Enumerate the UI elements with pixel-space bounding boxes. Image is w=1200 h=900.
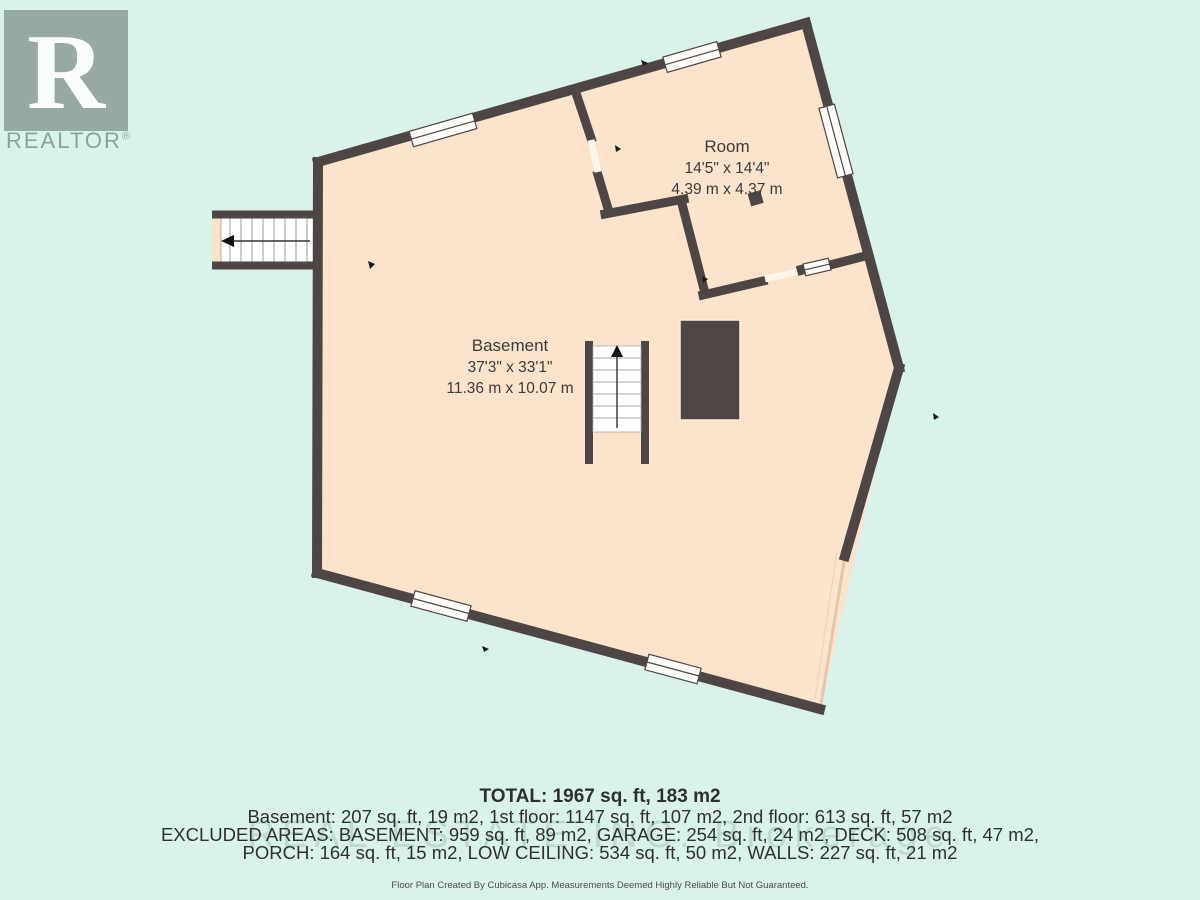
chimney-block xyxy=(680,320,740,420)
room-label: Room 14'5" x 14'4" 4.39 m x 4.37 m xyxy=(671,136,782,201)
basement-label: Basement 37'3" x 33'1" 11.36 m x 10.07 m xyxy=(446,335,573,400)
svg-text:R: R xyxy=(27,13,106,132)
room-dim-ft: 14'5" x 14'4" xyxy=(671,159,782,180)
room-dim-m: 4.39 m x 4.37 m xyxy=(671,180,782,201)
realtor-wordmark-label: REALTOR xyxy=(6,128,122,153)
realtor-logo-icon: R xyxy=(4,10,128,132)
summary-total: TOTAL: 1967 sq. ft, 183 m2 xyxy=(0,786,1200,808)
registered-mark: ® xyxy=(122,131,132,143)
exterior-stairs xyxy=(212,212,320,268)
basement-dim-m: 11.36 m x 10.07 m xyxy=(446,379,573,400)
floorplan-page: R xyxy=(0,0,1200,900)
basement-dim-ft: 37'3" x 33'1" xyxy=(446,358,573,379)
summary-excluded-2: PORCH: 164 sq. ft, 15 m2, LOW CEILING: 5… xyxy=(0,842,1200,864)
floorplan-drawing: R xyxy=(0,0,1200,900)
room-name: Room xyxy=(671,136,782,159)
basement-name: Basement xyxy=(446,335,573,358)
realtor-wordmark: REALTOR® xyxy=(6,128,146,154)
footer-disclaimer: Floor Plan Created By Cubicasa App. Meas… xyxy=(0,880,1200,891)
